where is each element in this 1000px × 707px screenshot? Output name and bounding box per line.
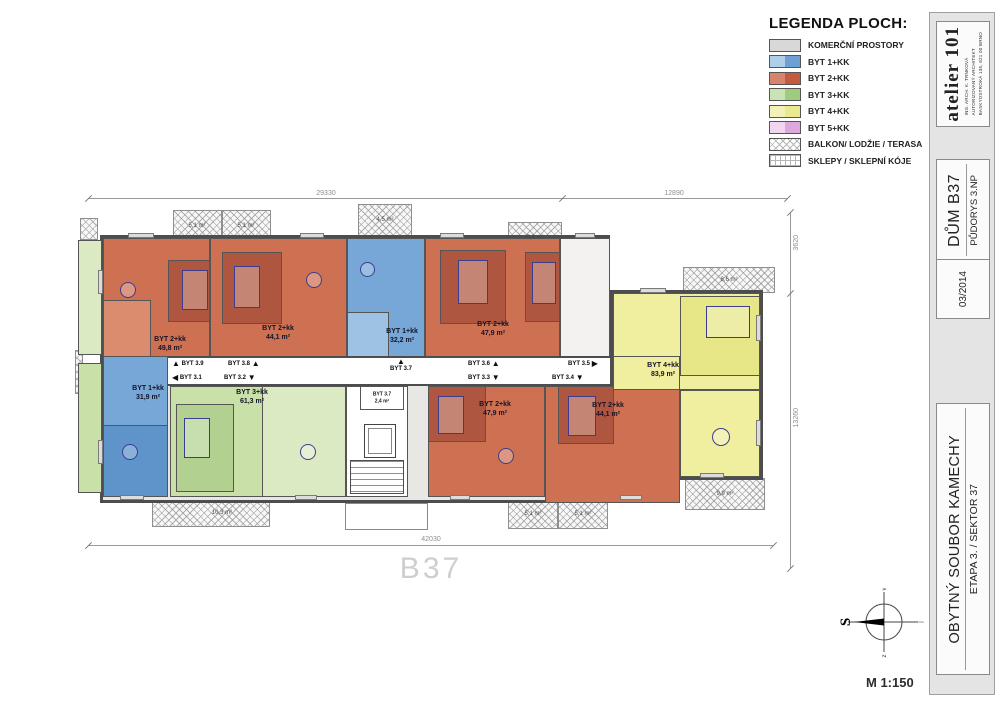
- apartment-label-3-5: BYT 4+kk83,9 m²: [647, 361, 679, 379]
- compass-right-letter: j: [918, 621, 924, 623]
- studio-details: ING. ARCH. K. TRNKOVÁ AUTORIZOVANÝ ARCHI…: [964, 32, 985, 115]
- window: [295, 495, 317, 500]
- furniture-bed: [706, 306, 750, 338]
- furniture-bed: [458, 260, 488, 304]
- project-title-box: OBYTNÝ SOUBOR KAMECHY ETAPA 3. / SEKTOR …: [936, 403, 990, 675]
- swatch-byt4-icon: [769, 105, 801, 118]
- apartment-label-3-9: BYT 2+kk49,8 m²: [154, 335, 186, 353]
- furniture-bed: [438, 396, 464, 434]
- legend-item-komercni: KOMERČNÍ PROSTORY: [769, 39, 939, 51]
- balcony-area-label: 8,6 m²: [720, 277, 737, 283]
- date-label: 03/2014: [958, 271, 969, 307]
- apartment-label-3-4: BYT 2+kk44,1 m²: [592, 401, 624, 419]
- balcony-area-label: 5,1 m²: [524, 511, 541, 517]
- legend-item-byt2: BYT 2+KK: [769, 72, 939, 84]
- window: [128, 233, 154, 238]
- balcony-area-label: 5,1 m²: [237, 223, 254, 229]
- swatch-byt1-icon: [769, 55, 801, 68]
- balcony-area-label: 5,6 m²: [526, 235, 543, 241]
- north-letter: S: [838, 618, 854, 626]
- balcony: [80, 218, 98, 240]
- dim-bottom: 42030: [421, 536, 440, 543]
- furniture-table: [120, 282, 136, 298]
- window: [756, 420, 761, 446]
- dim-right-top: 3620: [793, 235, 800, 251]
- drawing-subtitle: PŮDORYS 3.NP: [969, 175, 980, 246]
- apartment-label-3-2: BYT 3+kk61,3 m²: [236, 388, 268, 406]
- corridor-label-3-7: ▲BYT 3.7: [390, 358, 412, 372]
- legend-title: LEGENDA PLOCH:: [769, 15, 939, 32]
- date-box: 03/2014: [936, 259, 990, 319]
- legend-item-balkon: BALKON/ LODŽIE / TERASA: [769, 138, 939, 150]
- dim-right-bottom: 13260: [793, 408, 800, 427]
- floor-plan-sheet: LEGENDA PLOCH: KOMERČNÍ PROSTORY BYT 1+K…: [0, 0, 1000, 707]
- furniture-table: [306, 272, 322, 288]
- window: [640, 288, 666, 293]
- furniture-table: [712, 428, 730, 446]
- corridor-label-3-6: BYT 3.6 ▲: [468, 360, 500, 368]
- corridor-label-3-9: ▲ BYT 3.9: [172, 360, 204, 368]
- apartment-3-1-living: [103, 425, 168, 497]
- corridor-label-3-8: BYT 3.8 ▲: [228, 360, 260, 368]
- furniture-bed: [234, 266, 260, 308]
- project-subtitle: ETAPA 3. / SEKTOR 37: [968, 484, 980, 594]
- window: [756, 315, 761, 341]
- neighbor-apartment-room: [78, 240, 102, 355]
- furniture-table: [122, 444, 138, 460]
- balcony-area-label: 5,1 m²: [188, 223, 205, 229]
- compass-bottom-letter: z: [882, 655, 888, 658]
- furniture-bed: [532, 262, 556, 304]
- legend-item-byt5: BYT 5+KK: [769, 122, 939, 134]
- furniture-table: [360, 262, 375, 277]
- building-label: B37: [400, 552, 462, 586]
- window: [440, 233, 464, 238]
- swatch-balkon-icon: [769, 138, 801, 151]
- technical-room: [560, 238, 610, 360]
- studio-name: atelier 101: [942, 26, 964, 122]
- legend-item-byt4: BYT 4+KK: [769, 105, 939, 117]
- dim-top-right: 12890: [664, 190, 683, 197]
- dimension-line-bottom: [88, 545, 773, 546]
- apartment-label-3-3: BYT 2+kk47,9 m²: [479, 400, 511, 418]
- north-arrow-icon: S v j z: [838, 588, 924, 664]
- dim-tick: [784, 195, 791, 202]
- apartment-label-3-8: BYT 2+kk44,1 m²: [262, 324, 294, 342]
- apartment-label-3-1: BYT 1+kk31,9 m²: [132, 384, 164, 402]
- legend-item-sklepy: SKLEPY / SKLEPNÍ KÓJE: [769, 155, 939, 167]
- building-title: DŮM B37: [946, 174, 964, 247]
- scale-label: M 1:150: [866, 675, 914, 690]
- cellar-label: BYT 3.72,4 m²: [373, 392, 391, 405]
- furniture-table: [300, 444, 316, 460]
- corridor-label-3-1: ◀ BYT 3.1: [172, 374, 202, 382]
- balcony-area-label: 5,1 m²: [574, 511, 591, 517]
- legend: LEGENDA PLOCH: KOMERČNÍ PROSTORY BYT 1+K…: [769, 15, 939, 171]
- legend-item-byt1: BYT 1+KK: [769, 56, 939, 68]
- divider: [965, 408, 966, 670]
- window: [575, 233, 595, 238]
- window: [98, 270, 103, 294]
- dimension-line-top: [88, 198, 787, 199]
- compass-top-letter: v: [882, 588, 888, 591]
- apartment-label-3-7: BYT 1+kk32,2 m²: [386, 327, 418, 345]
- furniture-bed: [184, 418, 210, 458]
- dimension-line-right: [790, 212, 791, 568]
- furniture-table: [498, 448, 514, 464]
- apartment-3-2-living: [262, 386, 346, 497]
- entrance-vestibule: [345, 503, 428, 530]
- divider: [966, 164, 967, 256]
- title-block: atelier 101 ING. ARCH. K. TRNKOVÁ AUTORI…: [929, 12, 995, 695]
- swatch-komercni-icon: [769, 39, 801, 52]
- drawing-title-box: DŮM B37 PŮDORYS 3.NP: [936, 159, 990, 261]
- neighbor-apartment-room: [78, 363, 102, 493]
- corridor-label-3-3: BYT 3.3 ▼: [468, 374, 500, 382]
- staircase: [350, 460, 404, 494]
- swatch-byt2-icon: [769, 72, 801, 85]
- corridor-label-3-5: BYT 3.5 ▶: [568, 360, 598, 368]
- swatch-byt5-icon: [769, 121, 801, 134]
- apartment-label-3-6: BYT 2+kk47,9 m²: [477, 320, 509, 338]
- apartment-3-9-room: [103, 300, 151, 364]
- window: [98, 440, 103, 464]
- balcony-area-label: 9,9 m²: [716, 491, 733, 497]
- dim-tick: [770, 542, 777, 549]
- elevator: [364, 424, 396, 458]
- window: [120, 495, 144, 500]
- window: [450, 495, 470, 500]
- furniture-bed: [182, 270, 208, 310]
- balcony-area-label: 10,3 m²: [212, 510, 232, 516]
- dim-tick: [787, 565, 794, 572]
- corridor-label-3-2: BYT 3.2 ▼: [224, 374, 256, 382]
- window: [300, 233, 324, 238]
- dim-top-left: 29330: [316, 190, 335, 197]
- project-title: OBYTNÝ SOUBOR KAMECHY: [947, 435, 963, 644]
- corridor-label-3-4: BYT 3.4 ▼: [552, 374, 584, 382]
- swatch-sklepy-icon: [769, 154, 801, 167]
- swatch-byt3-icon: [769, 88, 801, 101]
- window: [700, 473, 724, 478]
- balcony-area-label: 4,5 m²: [376, 217, 393, 223]
- studio-stamp: atelier 101 ING. ARCH. K. TRNKOVÁ AUTORI…: [936, 21, 990, 127]
- window: [620, 495, 642, 500]
- legend-item-byt3: BYT 3+KK: [769, 89, 939, 101]
